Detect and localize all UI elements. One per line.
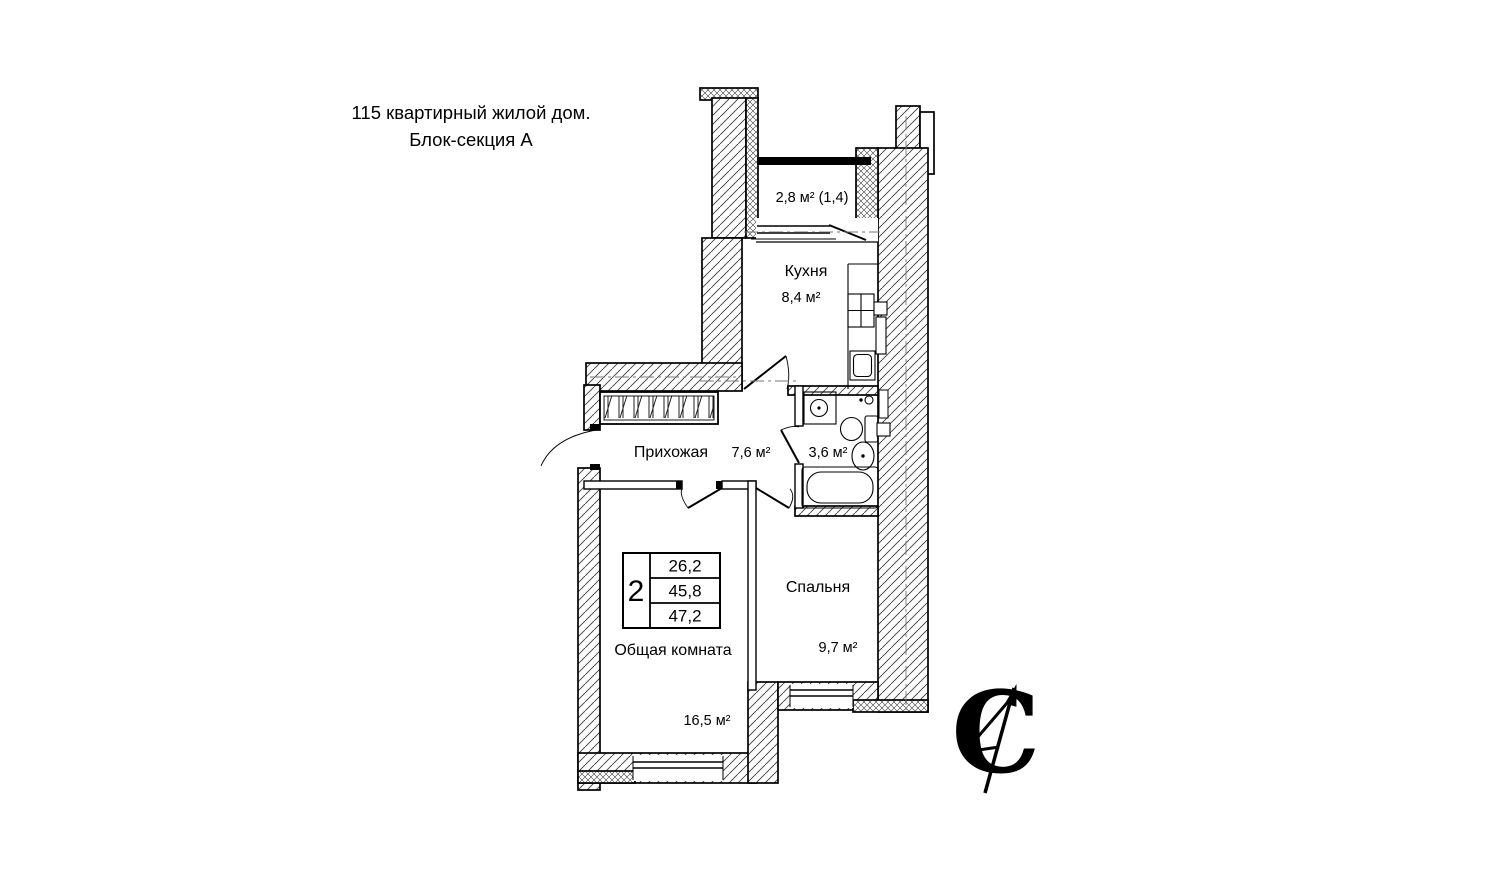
floor-plan-page: 115 квартирный жилой дом. Блок-секция А — [0, 0, 1500, 875]
living-room-door-arc — [681, 489, 688, 508]
hallway-area-label: 7,6 м² — [732, 445, 771, 461]
table-rooms-count: 2 — [628, 575, 645, 608]
partition-bathroom-left-upper — [795, 386, 803, 426]
entrance-cap-bottom — [590, 464, 600, 470]
wall-bottom-right-insulation — [853, 700, 928, 712]
bathtub — [802, 467, 878, 508]
faucet-icon — [865, 396, 873, 404]
entrance-cap-top — [590, 424, 600, 430]
toilet-bowl — [841, 418, 863, 441]
bedroom-window — [790, 684, 853, 708]
living-door-cap-right — [716, 481, 722, 489]
wall-corner-living-bedroom — [748, 682, 778, 783]
apartment-info-table: 2 26,2 45,8 47,2 — [623, 553, 720, 628]
bedroom-door-arc — [789, 489, 793, 508]
north-letter: С — [951, 668, 1040, 799]
wall-right-top-stub — [896, 106, 920, 150]
stove-burner-grid — [848, 294, 874, 327]
living-room-name-label: Общая комната — [614, 642, 731, 659]
kitchen-door-leaf — [744, 356, 786, 389]
wall-balcony-left-insulation — [746, 98, 758, 238]
living-room-door-leaf — [688, 488, 722, 508]
table-value-row1: 26,2 — [668, 557, 701, 576]
title-block: 115 квартирный жилой дом. Блок-секция А — [351, 102, 590, 150]
wall-balcony-left — [712, 98, 746, 238]
living-room-area-label: 16,5 м² — [683, 713, 730, 729]
bathroom-sink-drain — [861, 454, 864, 457]
partition-living-top — [584, 481, 682, 489]
vent-duct — [879, 390, 888, 418]
living-room-window — [633, 755, 723, 781]
kitchen-wall-unit — [876, 317, 886, 354]
bedroom-area-label: 9,7 м² — [819, 640, 858, 656]
floor-plan-drawing: 115 квартирный жилой дом. Блок-секция А — [0, 0, 1500, 875]
living-door-cap-left — [676, 481, 682, 489]
table-value-row2: 45,8 — [668, 582, 701, 601]
wall-bottom-left-insulation — [578, 771, 635, 783]
wall-left-exterior — [578, 468, 600, 790]
drawing-title-line2: Блок-секция А — [409, 129, 533, 150]
partition-living-bedroom — [748, 481, 756, 690]
bathroom-door-leaf — [781, 430, 799, 463]
drawing-title-line1: 115 квартирный жилой дом. — [351, 102, 590, 123]
washing-machine-dot — [817, 406, 820, 409]
bathtub-basin — [807, 472, 873, 503]
balcony-railing — [757, 157, 871, 165]
north-arrow: С — [951, 668, 1040, 799]
entrance-door-arc — [541, 430, 596, 466]
bathroom-area-label: 3,6 м² — [809, 445, 848, 461]
bathroom-door-arc — [781, 426, 799, 430]
faucet-dot — [859, 398, 862, 401]
stove-control-box — [874, 302, 887, 315]
hallway-name-label: Прихожая — [634, 444, 708, 461]
kitchen-door-arc — [786, 356, 789, 389]
table-value-row3: 47,2 — [668, 607, 701, 626]
wardrobe — [600, 392, 718, 424]
bathroom-shelf — [877, 423, 890, 436]
kitchen-sink-basin — [854, 355, 872, 377]
kitchen-name-label: Кухня — [785, 263, 828, 280]
bedroom-name-label: Спальня — [786, 579, 850, 596]
bedroom-door-leaf — [756, 488, 789, 508]
kitchen-area-label: 8,4 м² — [782, 290, 821, 306]
wall-entrance-upper — [584, 385, 600, 430]
toilet-tank — [865, 416, 878, 442]
balcony-area-label: 2,8 м² (1,4) — [776, 190, 849, 206]
